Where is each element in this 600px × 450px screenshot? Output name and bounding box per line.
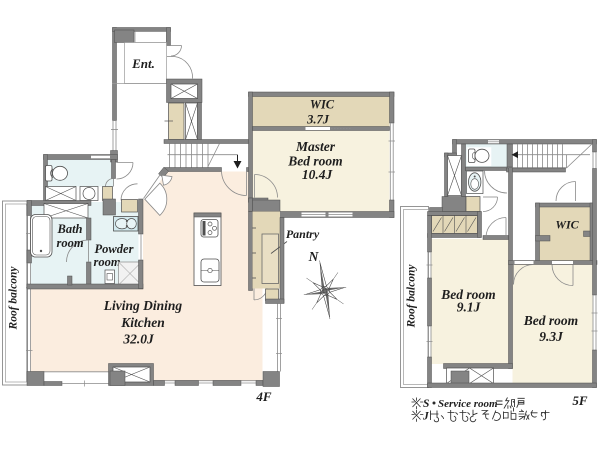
svg-text:N: N xyxy=(308,249,320,264)
svg-text:10.4J: 10.4J xyxy=(302,167,334,182)
svg-text:9.1J: 9.1J xyxy=(457,300,482,315)
svg-text:Master: Master xyxy=(295,139,336,154)
svg-text:32.0J: 32.0J xyxy=(122,332,155,347)
svg-text:Ent.: Ent. xyxy=(131,56,155,71)
svg-text:Roof balcony: Roof balcony xyxy=(8,266,20,331)
svg-text:Roof balcony: Roof balcony xyxy=(406,264,418,329)
svg-text:WIC: WIC xyxy=(555,218,579,232)
svg-text:4F: 4F xyxy=(255,389,272,404)
svg-text:Kitchen: Kitchen xyxy=(120,315,165,330)
svg-text:room: room xyxy=(56,236,83,250)
svg-text:S: S xyxy=(423,398,429,410)
svg-text:Bed room: Bed room xyxy=(523,313,578,328)
svg-text:room: room xyxy=(93,255,120,269)
svg-text:Pantry: Pantry xyxy=(286,227,320,241)
svg-text:9.3J: 9.3J xyxy=(539,329,564,344)
svg-text:3.7J: 3.7J xyxy=(306,113,330,127)
svg-text:5F: 5F xyxy=(572,393,588,408)
svg-text:WIC: WIC xyxy=(310,98,335,112)
svg-text:Bath: Bath xyxy=(56,222,82,236)
svg-text:Living Dining: Living Dining xyxy=(103,298,183,313)
svg-text:Powder: Powder xyxy=(95,242,134,256)
svg-text:Service room: Service room xyxy=(438,398,498,410)
